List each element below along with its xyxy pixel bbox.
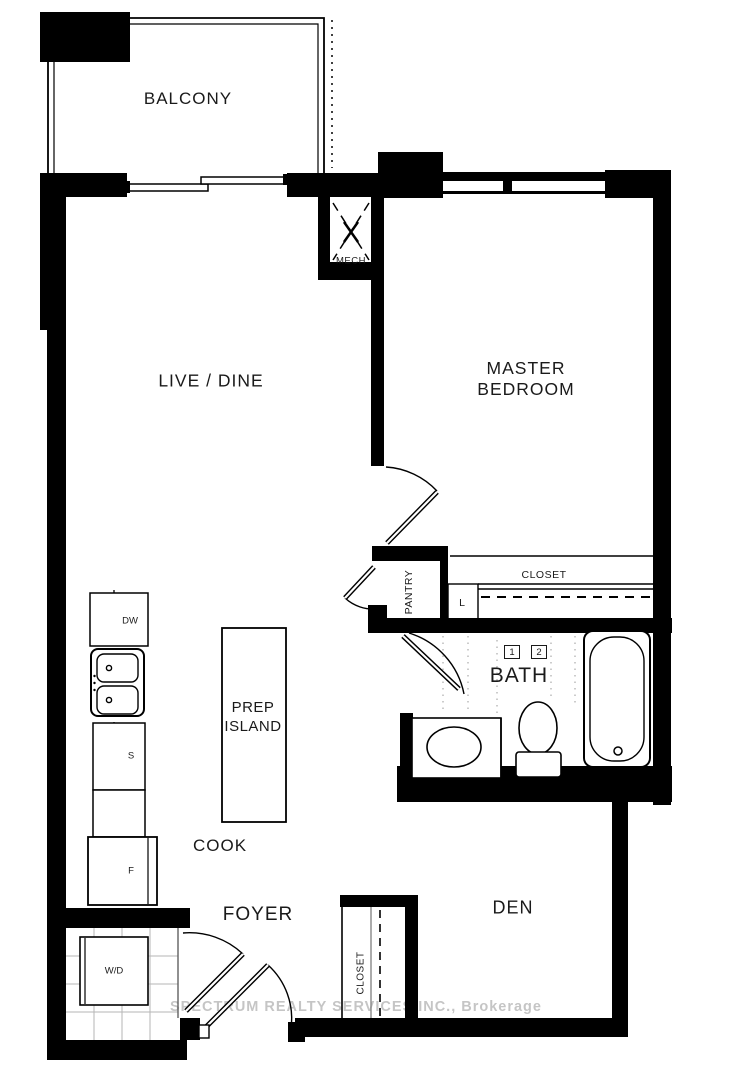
master-bedroom-door xyxy=(386,467,437,543)
fixture-label-fridge: F xyxy=(128,866,134,877)
bathtub xyxy=(584,631,650,767)
room-label-foyer: FOYER xyxy=(223,904,293,926)
room-label-live-dine: LIVE / DINE xyxy=(158,371,263,392)
room-label-foyer-closet: CLOSET xyxy=(356,951,367,994)
laundry-closet xyxy=(66,928,178,1040)
master-closet-lines xyxy=(448,556,653,620)
floorplan-linework xyxy=(0,0,743,1065)
mech-x-symbol xyxy=(333,203,369,260)
room-label-bath: BATH xyxy=(490,664,548,688)
room-label-prep-island: PREP ISLAND xyxy=(217,698,289,736)
fixture-label-washer-dryer: W/D xyxy=(105,966,123,977)
room-label-mech: MECH xyxy=(336,256,366,267)
room-label-master-bedroom: MASTER BEDROOM xyxy=(461,358,591,400)
room-label-balcony: BALCONY xyxy=(144,89,232,109)
floorplan: SPECTRUM REALTY SERVICES INC., Brokerage xyxy=(0,0,743,1065)
kitchen-counter xyxy=(88,590,157,905)
bath-vanity-sink xyxy=(412,718,501,778)
room-label-pantry: PANTRY xyxy=(403,570,415,615)
bath-door xyxy=(403,633,464,694)
room-label-linen: L xyxy=(459,597,465,609)
room-label-master-closet: CLOSET xyxy=(521,569,566,581)
pantry-door xyxy=(345,567,377,609)
toilet xyxy=(516,702,561,777)
interior-walls xyxy=(66,195,672,1042)
fixture-label-dishwasher: DW xyxy=(122,616,138,627)
fixture-label-stove: S xyxy=(128,751,134,762)
room-label-den: DEN xyxy=(492,898,533,919)
room-label-cook: COOK xyxy=(193,836,247,856)
balcony-sliding-door xyxy=(121,174,292,193)
bath-marker-2: 2 xyxy=(531,645,547,659)
bath-marker-1: 1 xyxy=(504,645,520,659)
